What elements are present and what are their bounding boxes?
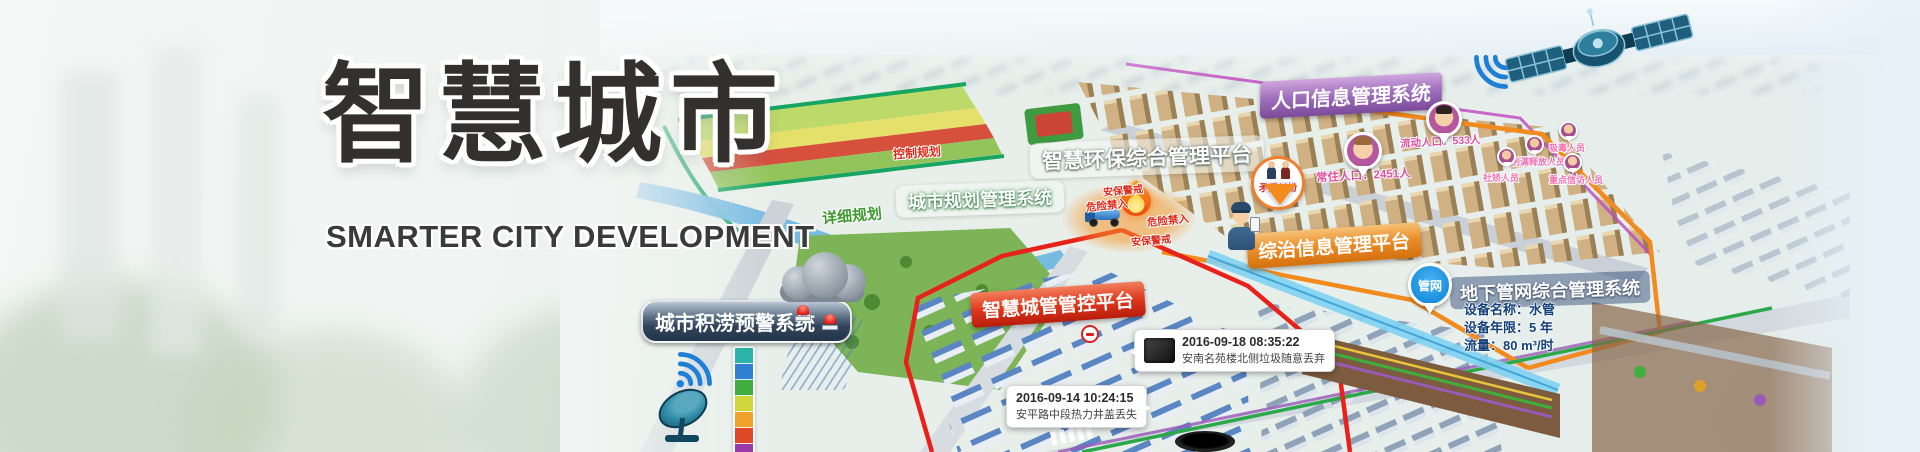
radar-dish-icon (652, 388, 714, 446)
person-tag-label: 社矫人员 (1483, 171, 1519, 184)
pipe-device-info: 设备名称：水管 设备年限：5 年 流量：80 m³/时 (1464, 301, 1555, 355)
note-control-planning: 控制规划 (892, 142, 941, 162)
label-planning-system[interactable]: 城市规划管理系统 (895, 180, 1064, 218)
pipe-network-pin[interactable]: 管网 (1408, 263, 1452, 307)
floating-population-pin[interactable] (1426, 101, 1462, 137)
event-time: 2016-09-18 08:35:22 (1182, 335, 1325, 349)
pipe-pin-text: 管网 (1418, 277, 1442, 294)
resident-population-pin[interactable] (1344, 132, 1382, 170)
person-tag-pin-icon[interactable] (1563, 153, 1582, 172)
satellite-icon (1495, 0, 1705, 100)
water-level-gauge (733, 346, 755, 452)
rain-cloud-icon (776, 246, 868, 306)
event-time: 2016-09-14 10:24:15 (1016, 391, 1137, 405)
person-tag-pin-icon[interactable] (1525, 135, 1544, 154)
label-flood-warning-system[interactable]: 城市积涝预警系统 (641, 300, 852, 343)
stadium (1024, 103, 1084, 146)
event-desc: 安南名苑楼北侧垃圾随意丢弃 (1182, 350, 1325, 366)
flood-system-text: 城市积涝预警系统 (655, 307, 815, 336)
cloud-siren-icon (795, 305, 811, 321)
pipe-flow: 流量：80 m³/时 (1464, 337, 1555, 355)
dispute-figures-icon (1254, 167, 1302, 179)
page-subtitle: SMARTER CITY DEVELOPMENT (326, 219, 815, 255)
pipe-device-name: 设备名称：水管 (1464, 301, 1555, 319)
event-callout-garbage: 2016-09-18 08:35:22 安南名苑楼北侧垃圾随意丢弃 (1134, 329, 1335, 372)
satellite-signal-icon (1466, 46, 1512, 97)
garbage-photo (1144, 338, 1175, 363)
manhole-icon (1175, 431, 1235, 452)
smart-city-banner: 智慧城市 SMARTER CITY DEVELOPMENT 智慧环保综合管理平台… (0, 0, 1920, 452)
person-tag-pin-icon[interactable] (1497, 147, 1516, 166)
no-entry-icon (1081, 325, 1099, 343)
event-desc: 安平路中段热力井盖丢失 (1016, 406, 1137, 422)
pipe-device-age: 设备年限：5 年 (1464, 319, 1555, 337)
person-tag-pin-icon[interactable] (1559, 121, 1578, 140)
location-pin-icon (1264, 184, 1296, 205)
police-officer-icon (1221, 201, 1261, 253)
flood-siren-icon (822, 314, 838, 330)
page-title: 智慧城市 (322, 56, 786, 175)
event-callout-manhole: 2016-09-14 10:24:15 安平路中段热力井盖丢失 (1006, 385, 1147, 428)
